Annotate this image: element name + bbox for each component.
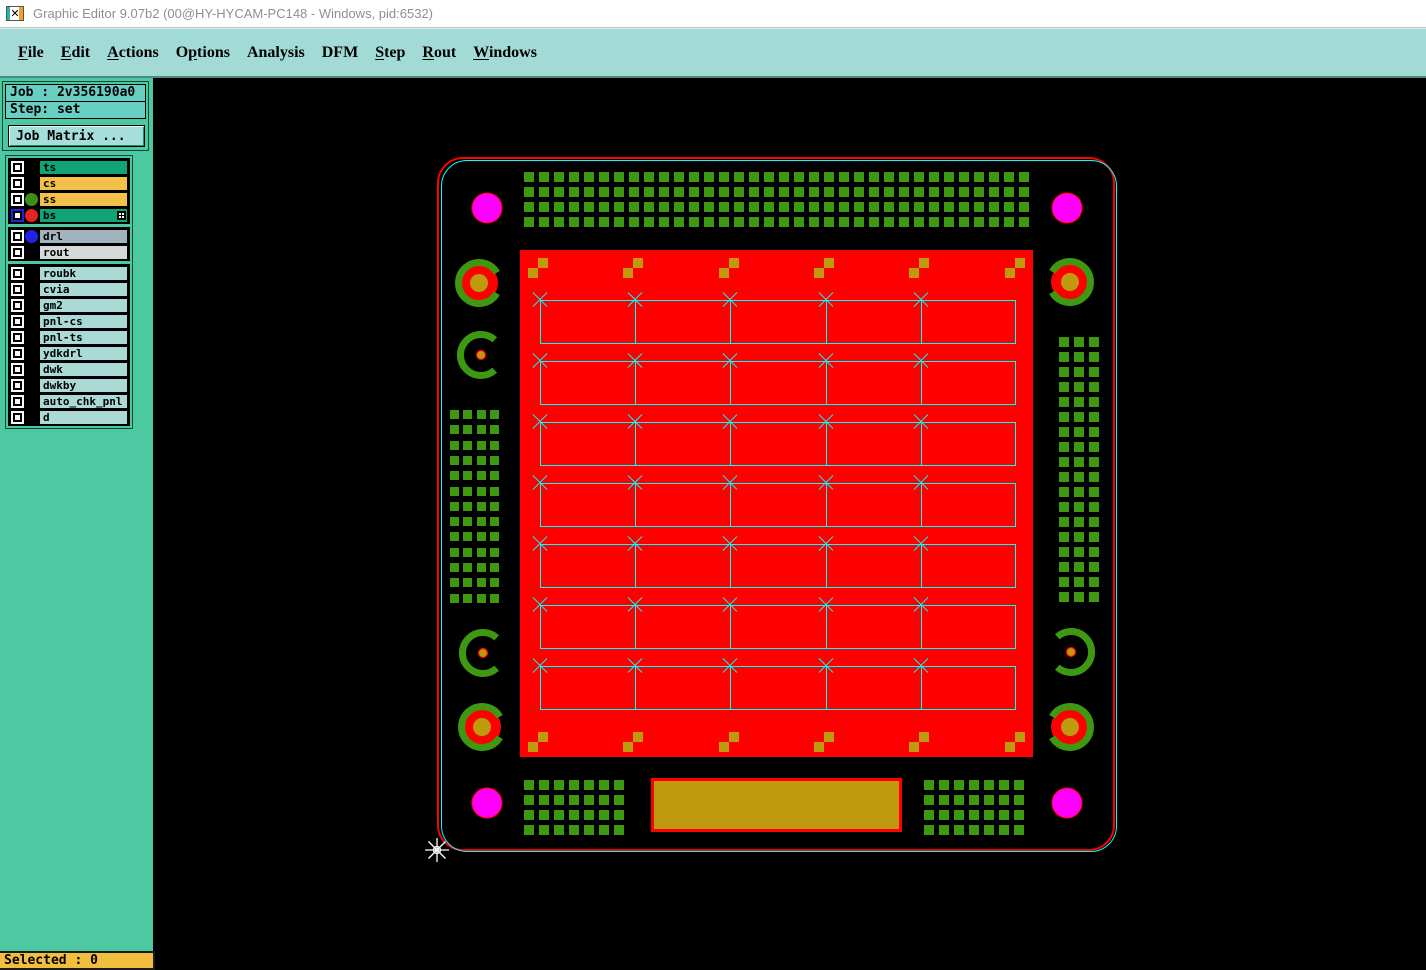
pad-square [614, 810, 624, 820]
pad-square [914, 217, 924, 227]
pad-square [569, 795, 579, 805]
pad-square [450, 425, 459, 434]
pad-square [984, 780, 994, 790]
pad-square [974, 202, 984, 212]
pad-square [450, 532, 459, 541]
pad-square [999, 780, 1009, 790]
pad-square [463, 532, 472, 541]
fiducial [538, 732, 548, 742]
pad-square [614, 825, 624, 835]
pad-square [490, 471, 499, 480]
layer-checkbox-gm2[interactable] [11, 299, 24, 312]
layer-name-dwkby[interactable]: dwkby [40, 379, 127, 392]
pad-square [614, 795, 624, 805]
pad-square [854, 202, 864, 212]
layer-row-d: d [9, 409, 129, 425]
job-matrix-button[interactable]: Job Matrix ... [8, 125, 145, 147]
pad-square [824, 187, 834, 197]
pad-square [1059, 367, 1069, 377]
pad-square [869, 172, 879, 182]
layer-row-bs: bs [9, 207, 129, 223]
pad-square [584, 795, 594, 805]
pad-square [809, 217, 819, 227]
pad-square [1014, 795, 1024, 805]
layer-color-dot-ss [25, 193, 38, 206]
registration-cross [912, 474, 930, 492]
pad-square [1059, 457, 1069, 467]
layer-name-ts[interactable]: ts [40, 161, 127, 174]
pad-square [554, 780, 564, 790]
layer-name-dwk[interactable]: dwk [40, 363, 127, 376]
layer-checkbox-bs[interactable] [11, 209, 24, 222]
pad-square [539, 795, 549, 805]
registration-cross [531, 535, 549, 553]
pad-square [584, 780, 594, 790]
pad-square [1059, 397, 1069, 407]
pad-square [1089, 367, 1099, 377]
pad-square [477, 548, 486, 557]
layer-dot-spacer [25, 363, 38, 376]
pad-square [689, 172, 699, 182]
pad-square [1074, 397, 1084, 407]
board-row-outline [540, 300, 1016, 344]
layer-row-dwk: dwk [9, 361, 129, 377]
pad-square [490, 425, 499, 434]
pad-square [524, 187, 534, 197]
pad-square [599, 795, 609, 805]
pad-square [839, 187, 849, 197]
pad-square [1089, 487, 1099, 497]
pad-square [914, 187, 924, 197]
pad-square [490, 441, 499, 450]
layer-name-d[interactable]: d [40, 411, 127, 424]
pad-square [884, 202, 894, 212]
pad-square [554, 217, 564, 227]
pad-square [1089, 532, 1099, 542]
layer-name-ydkdrl[interactable]: ydkdrl [40, 347, 127, 360]
layer-name-pnl-ts[interactable]: pnl-ts [40, 331, 127, 344]
pad-square [969, 810, 979, 820]
coupon-block [651, 778, 902, 832]
fiducial [1015, 732, 1025, 742]
layer-checkbox-rout[interactable] [11, 246, 24, 259]
pad-square [524, 217, 534, 227]
pad-square [764, 202, 774, 212]
layer-dot-spacer [25, 379, 38, 392]
pad-square [524, 795, 534, 805]
pad-square [794, 187, 804, 197]
layer-name-auto_chk_pnl[interactable]: auto_chk_pnl [40, 395, 127, 408]
pad-square [689, 187, 699, 197]
layer-row-pnl-cs: pnl-cs [9, 313, 129, 329]
pad-square [794, 217, 804, 227]
pad-square [1004, 187, 1014, 197]
pad-square [959, 202, 969, 212]
pad-square [477, 487, 486, 496]
pad-square [899, 202, 909, 212]
layer-checkbox-d[interactable] [11, 411, 24, 424]
pad-square [734, 202, 744, 212]
pad-square [1089, 547, 1099, 557]
pad-square [599, 810, 609, 820]
pad-square [450, 578, 459, 587]
pad-square [569, 810, 579, 820]
layer-dot-spacer [25, 161, 38, 174]
pad-square [969, 795, 979, 805]
pad-square [1089, 412, 1099, 422]
board-row-outline [540, 361, 1016, 405]
pad-square [974, 217, 984, 227]
pad-square [939, 780, 949, 790]
pad-square [490, 594, 499, 603]
pad-square [884, 217, 894, 227]
pad-square [1089, 457, 1099, 467]
pad-square [584, 202, 594, 212]
pad-square [450, 471, 459, 480]
pad-square [719, 217, 729, 227]
pad-square [1059, 382, 1069, 392]
pad-square [674, 187, 684, 197]
pad-square [629, 172, 639, 182]
pad-square [477, 517, 486, 526]
fiducial [729, 258, 739, 268]
pad-square [554, 202, 564, 212]
pad-square [939, 810, 949, 820]
pad-square [450, 410, 459, 419]
pad-square [659, 217, 669, 227]
pad-square [899, 172, 909, 182]
pad-square [689, 202, 699, 212]
board-row-outline [540, 666, 1016, 710]
pad-square [704, 187, 714, 197]
pad-square [719, 172, 729, 182]
pad-square [989, 187, 999, 197]
registration-cross [626, 596, 644, 614]
pad-square [839, 217, 849, 227]
pad-square [463, 410, 472, 419]
pad-square [1089, 562, 1099, 572]
layer-dot-spacer [25, 347, 38, 360]
pad-square [463, 578, 472, 587]
pad-square [969, 780, 979, 790]
layer-checkbox-auto_chk_pnl[interactable] [11, 395, 24, 408]
layer-row-rout: rout [9, 244, 129, 260]
fiducial [538, 258, 548, 268]
pad-square [1089, 397, 1099, 407]
registration-cross [817, 596, 835, 614]
pad-square [779, 187, 789, 197]
layer-row-ydkdrl: ydkdrl [9, 345, 129, 361]
pad-square [569, 780, 579, 790]
layer-dot-spacer [25, 411, 38, 424]
pad-square [1074, 367, 1084, 377]
pad-square [749, 202, 759, 212]
pad-square [524, 780, 534, 790]
pad-square [924, 795, 934, 805]
pad-square [1089, 472, 1099, 482]
layer-dot-spacer [25, 395, 38, 408]
pad-square [463, 548, 472, 557]
pad-square [984, 795, 994, 805]
pad-square [779, 202, 789, 212]
pad-square [734, 187, 744, 197]
pad-square [539, 172, 549, 182]
pad-square [704, 172, 714, 182]
pad-square [614, 172, 624, 182]
pad-square [809, 187, 819, 197]
layer-row-drl: drl [9, 228, 129, 244]
pad-square [1004, 217, 1014, 227]
registration-cross [626, 474, 644, 492]
pad-square [899, 217, 909, 227]
pad-square [463, 502, 472, 511]
pad-square [719, 202, 729, 212]
registration-cross [817, 474, 835, 492]
pad-square [1074, 427, 1084, 437]
registration-cross [626, 413, 644, 431]
pad-square [477, 441, 486, 450]
layer-checkbox-drl[interactable] [11, 230, 24, 243]
pad-square [854, 187, 864, 197]
pad-square [764, 217, 774, 227]
pad-square [477, 594, 486, 603]
pad-square [1089, 427, 1099, 437]
pad-square [554, 795, 564, 805]
pad-square [839, 202, 849, 212]
fiducial [814, 742, 824, 752]
pad-square [477, 532, 486, 541]
layer-dot-spacer [25, 283, 38, 296]
fiducial [1005, 268, 1015, 278]
pad-square [1089, 592, 1099, 602]
fiducial [623, 268, 633, 278]
pad-square [659, 187, 669, 197]
pad-square [1089, 577, 1099, 587]
pad-square [644, 217, 654, 227]
pad-square [644, 202, 654, 212]
job-info-box: Job : 2v356190a0 Step: set [5, 84, 146, 119]
layer-checkbox-pnl-cs[interactable] [11, 315, 24, 328]
pad-square [1004, 202, 1014, 212]
layer-name-bs[interactable]: bs [40, 209, 127, 222]
pad-square [944, 172, 954, 182]
pad-square [944, 217, 954, 227]
pad-square [1059, 442, 1069, 452]
layer-group-2: drlrout [8, 227, 130, 261]
layer-color-dot-bs [25, 209, 38, 222]
pad-square [1059, 562, 1069, 572]
registration-cross [626, 535, 644, 553]
layer-name-pnl-cs[interactable]: pnl-cs [40, 315, 127, 328]
pad-square [969, 825, 979, 835]
layer-checkbox-cvia[interactable] [11, 283, 24, 296]
pad-square [719, 187, 729, 197]
pad-square [914, 202, 924, 212]
pad-square [1019, 187, 1029, 197]
pad-square [644, 172, 654, 182]
layer-name-roubk[interactable]: roubk [40, 267, 127, 280]
pad-square [490, 517, 499, 526]
job-panel: Job : 2v356190a0 Step: set Job Matrix ..… [2, 81, 149, 151]
pad-square [1074, 577, 1084, 587]
layer-group-1: tscsssbs [8, 158, 130, 224]
layer-checkbox-dwk[interactable] [11, 363, 24, 376]
layer-name-cvia[interactable]: cvia [40, 283, 127, 296]
layer-row-cvia: cvia [9, 281, 129, 297]
layer-dot-spacer [25, 299, 38, 312]
pad-square [854, 217, 864, 227]
pad-square [959, 217, 969, 227]
pad-square [1074, 382, 1084, 392]
registration-cross [626, 291, 644, 309]
layer-checkbox-ts[interactable] [11, 161, 24, 174]
layer-name-cs[interactable]: cs [40, 177, 127, 190]
pad-square [914, 172, 924, 182]
board-row-outline [540, 544, 1016, 588]
pad-square [674, 172, 684, 182]
pad-square [477, 578, 486, 587]
pad-square [939, 825, 949, 835]
pad-square [1089, 517, 1099, 527]
layer-color-dot-drl [25, 230, 38, 243]
pad-square [463, 471, 472, 480]
layer-row-cs: cs [9, 175, 129, 191]
sidebar: Job : 2v356190a0 Step: set Job Matrix ..… [0, 78, 153, 951]
pad-square [614, 187, 624, 197]
pad-square [490, 578, 499, 587]
layer-checkbox-dwkby[interactable] [11, 379, 24, 392]
pad-square [674, 217, 684, 227]
pad-square [824, 172, 834, 182]
registration-cross [817, 352, 835, 370]
pad-square [999, 825, 1009, 835]
pad-square [939, 795, 949, 805]
pad-square [629, 202, 639, 212]
pad-square [450, 441, 459, 450]
layer-name-gm2[interactable]: gm2 [40, 299, 127, 312]
pad-square [1089, 442, 1099, 452]
pad-square [1089, 352, 1099, 362]
pad-square [524, 825, 534, 835]
registration-cross [721, 474, 739, 492]
pad-square [749, 172, 759, 182]
fiducial [528, 268, 538, 278]
pad-square [824, 217, 834, 227]
pad-square [599, 172, 609, 182]
pad-square [629, 187, 639, 197]
pad-square [824, 202, 834, 212]
selected-status: Selected : 0 [0, 951, 155, 970]
pad-square [569, 825, 579, 835]
pad-square [1019, 202, 1029, 212]
pad-square [959, 187, 969, 197]
layer-row-pnl-ts: pnl-ts [9, 329, 129, 345]
pad-square [689, 217, 699, 227]
layer-name-ss[interactable]: ss [40, 193, 127, 206]
pad-square [490, 532, 499, 541]
layer-dot-spacer [25, 267, 38, 280]
pad-square [929, 187, 939, 197]
pad-square [809, 202, 819, 212]
pad-square [854, 172, 864, 182]
pad-square [999, 795, 1009, 805]
fiducial [623, 742, 633, 752]
fiducial [633, 732, 643, 742]
pad-square [463, 517, 472, 526]
pad-square [1004, 172, 1014, 182]
pad-square [584, 187, 594, 197]
pad-square [749, 217, 759, 227]
layer-checkbox-ydkdrl[interactable] [11, 347, 24, 360]
layer-row-gm2: gm2 [9, 297, 129, 313]
pad-square [1059, 487, 1069, 497]
pad-square [989, 217, 999, 227]
pad-square [1089, 382, 1099, 392]
pad-square [929, 172, 939, 182]
pad-square [614, 202, 624, 212]
pad-square [1089, 337, 1099, 347]
pad-square [629, 217, 639, 227]
registration-cross [721, 291, 739, 309]
pad-square [924, 780, 934, 790]
layer-checkbox-cs[interactable] [11, 177, 24, 190]
pad-square [954, 795, 964, 805]
pad-square [554, 810, 564, 820]
pad-square [477, 456, 486, 465]
pad-square [929, 202, 939, 212]
fiducial [919, 732, 929, 742]
fiducial [824, 732, 834, 742]
layer-name-drl[interactable]: drl [40, 230, 127, 243]
pad-square [1059, 337, 1069, 347]
pad-square [539, 217, 549, 227]
fiducial [824, 258, 834, 268]
fiducial [814, 268, 824, 278]
layer-checkbox-ss[interactable] [11, 193, 24, 206]
registration-cross [721, 535, 739, 553]
pad-square [1074, 442, 1084, 452]
pad-square [704, 217, 714, 227]
pad-square [1059, 577, 1069, 587]
pad-square [929, 217, 939, 227]
job-name: Job : 2v356190a0 [6, 85, 145, 102]
pad-square [450, 594, 459, 603]
pad-square [974, 172, 984, 182]
layer-name-rout[interactable]: rout [40, 246, 127, 259]
board-row-outline [540, 422, 1016, 466]
pad-square [984, 810, 994, 820]
pad-square [884, 172, 894, 182]
registration-cross [721, 596, 739, 614]
pad-square [954, 810, 964, 820]
pad-square [1074, 547, 1084, 557]
layer-row-dwkby: dwkby [9, 377, 129, 393]
registration-cross [531, 596, 549, 614]
pad-square [809, 172, 819, 182]
pad-square [1059, 532, 1069, 542]
layer-dot-spacer [25, 246, 38, 259]
pad-square [490, 548, 499, 557]
layer-checkbox-roubk[interactable] [11, 267, 24, 280]
pad-square [1074, 592, 1084, 602]
pad-square [584, 172, 594, 182]
pad-square [704, 202, 714, 212]
pad-square [463, 594, 472, 603]
pad-square [1074, 337, 1084, 347]
layer-checkbox-pnl-ts[interactable] [11, 331, 24, 344]
pcb-drawing [0, 0, 1426, 970]
layer-group-3: roubkcviagm2pnl-cspnl-tsydkdrldwkdwkbyau… [8, 264, 130, 426]
